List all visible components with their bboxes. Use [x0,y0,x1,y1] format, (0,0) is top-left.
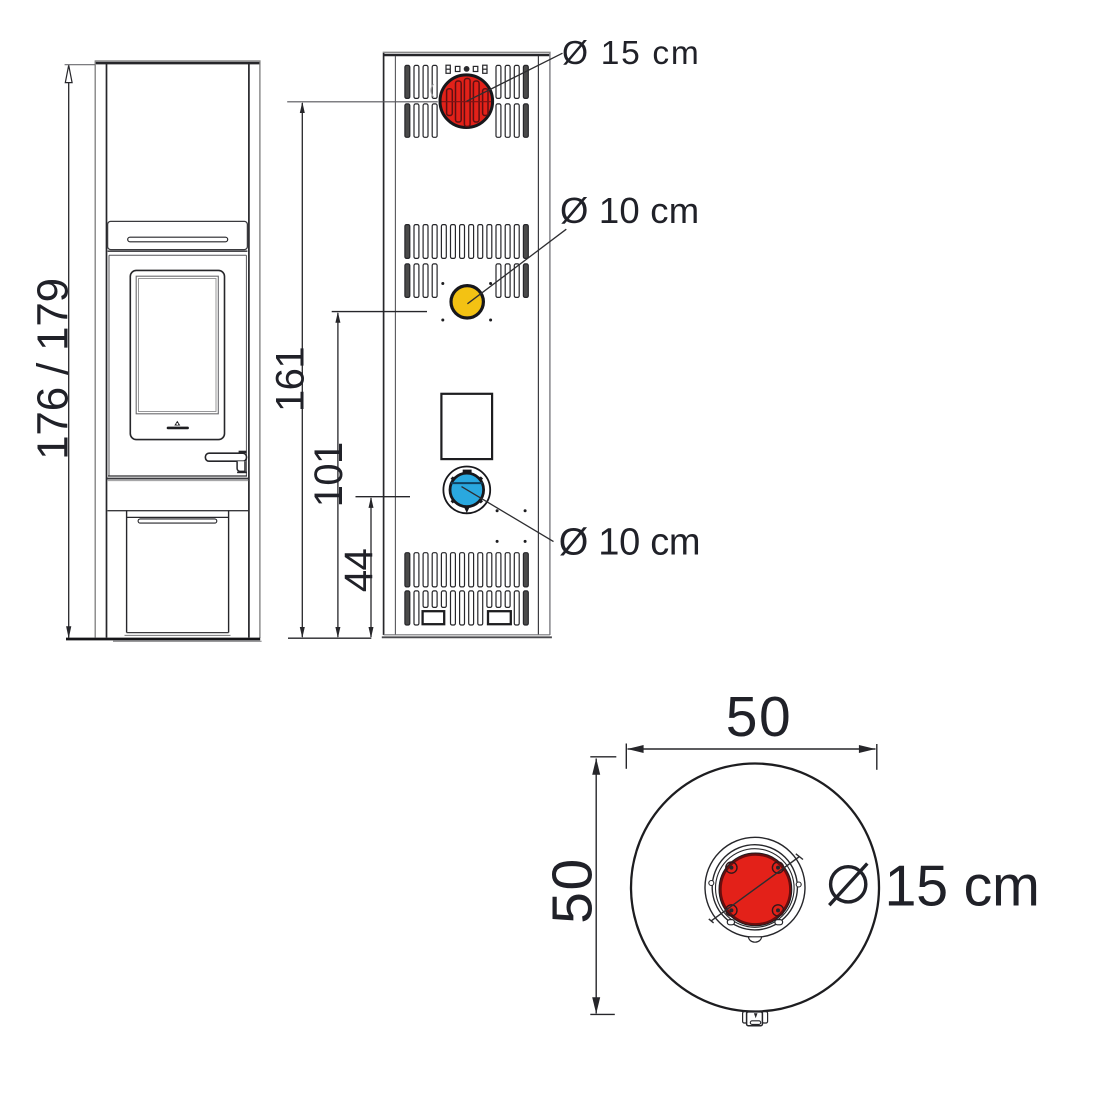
svg-text:Ø 10 cm: Ø 10 cm [560,190,699,231]
svg-text:Ø 15 cm: Ø 15 cm [562,35,701,72]
svg-text:161: 161 [269,347,313,412]
svg-text:50: 50 [726,685,792,749]
svg-text:Ø 10 cm: Ø 10 cm [559,522,701,564]
svg-text:15 cm: 15 cm [885,855,1040,919]
svg-text:44: 44 [337,549,381,593]
svg-text:101: 101 [307,442,351,507]
svg-text:50: 50 [541,857,605,923]
svg-text:176 / 179: 176 / 179 [29,278,78,460]
